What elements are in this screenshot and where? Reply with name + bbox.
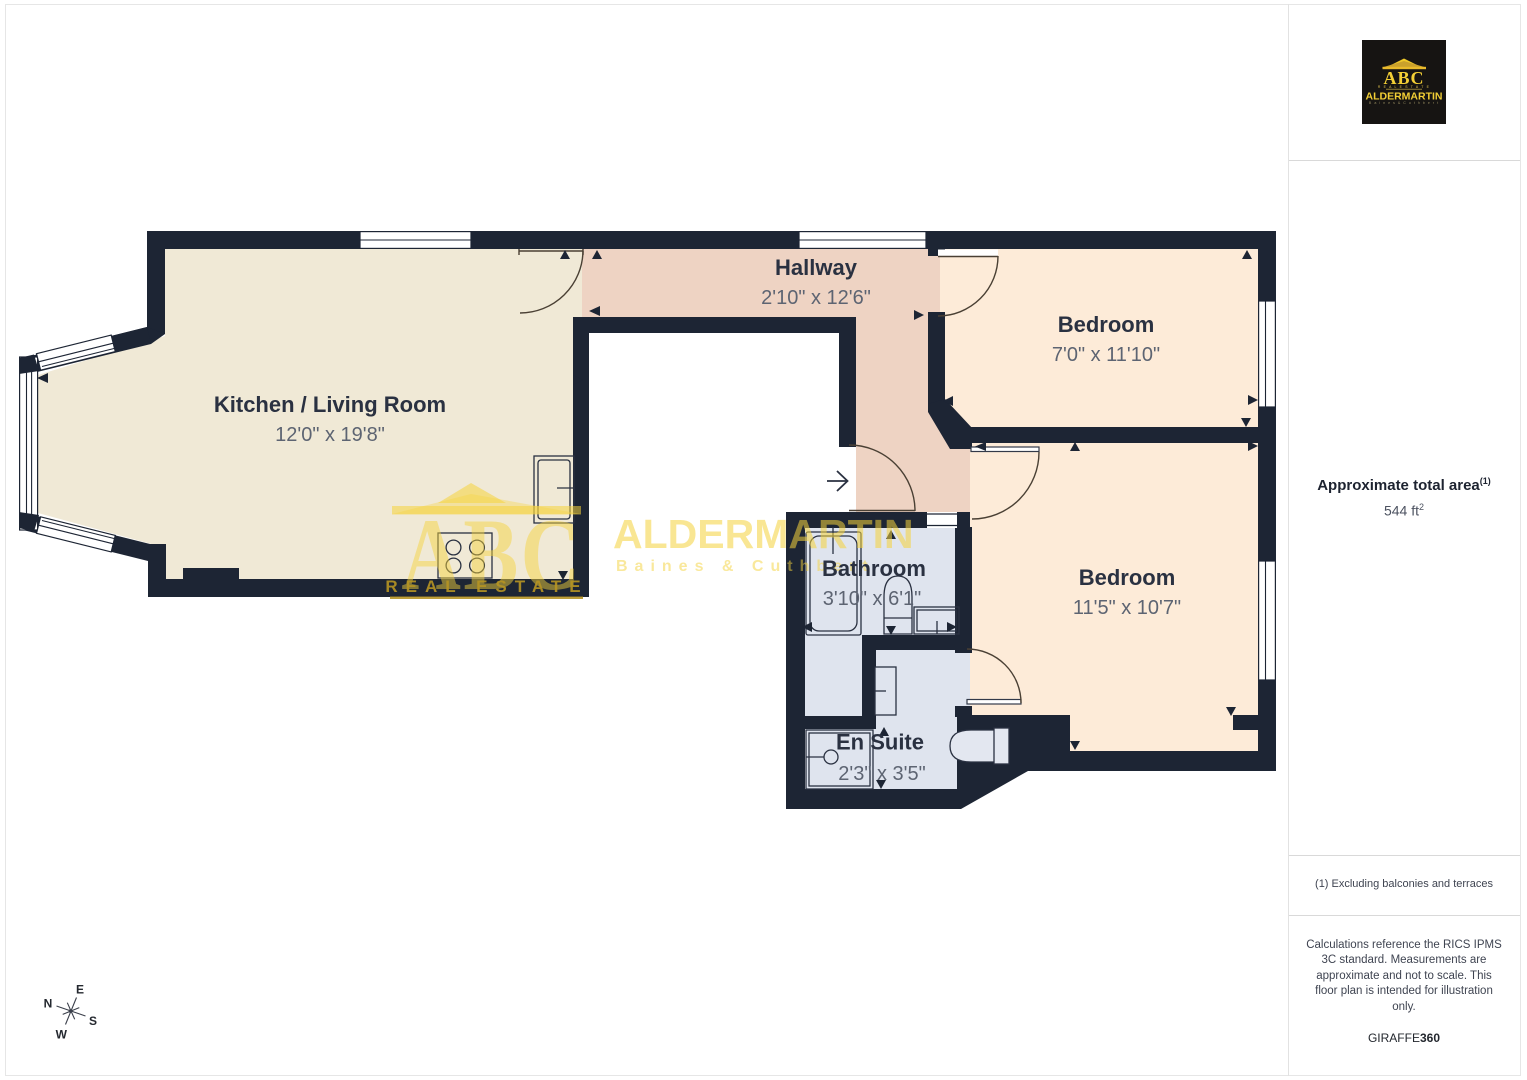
svg-text:2'3" x 3'5": 2'3" x 3'5" xyxy=(838,763,925,785)
svg-text:7'0" x 11'10": 7'0" x 11'10" xyxy=(1052,344,1160,366)
svg-text:W: W xyxy=(56,1027,68,1041)
svg-text:3'10" x 6'1": 3'10" x 6'1" xyxy=(823,588,922,610)
svg-text:N: N xyxy=(44,996,53,1010)
svg-text:Kitchen / Living Room: Kitchen / Living Room xyxy=(214,392,446,417)
svg-text:R E A L E S T A T E: R E A L E S T A T E xyxy=(1378,85,1430,89)
svg-text:Bedroom: Bedroom xyxy=(1079,565,1176,590)
svg-text:ALDERMARTIN: ALDERMARTIN xyxy=(613,511,914,557)
svg-text:11'5" x 10'7": 11'5" x 10'7" xyxy=(1073,597,1181,619)
svg-text:En Suite: En Suite xyxy=(836,730,924,755)
svg-text:2'10" x 12'6": 2'10" x 12'6" xyxy=(761,287,871,309)
svg-text:Bedroom: Bedroom xyxy=(1058,312,1155,337)
svg-text:B a i n e s & C u t h b e r: B a i n e s & C u t h b e r t xyxy=(1369,101,1439,105)
svg-text:E: E xyxy=(76,982,84,996)
svg-text:12'0" x 19'8": 12'0" x 19'8" xyxy=(275,424,385,446)
svg-text:S: S xyxy=(89,1014,97,1028)
svg-text:REAL ESTATE: REAL ESTATE xyxy=(385,577,588,596)
svg-text:Bathroom: Bathroom xyxy=(822,556,926,581)
svg-text:Hallway: Hallway xyxy=(775,255,858,280)
